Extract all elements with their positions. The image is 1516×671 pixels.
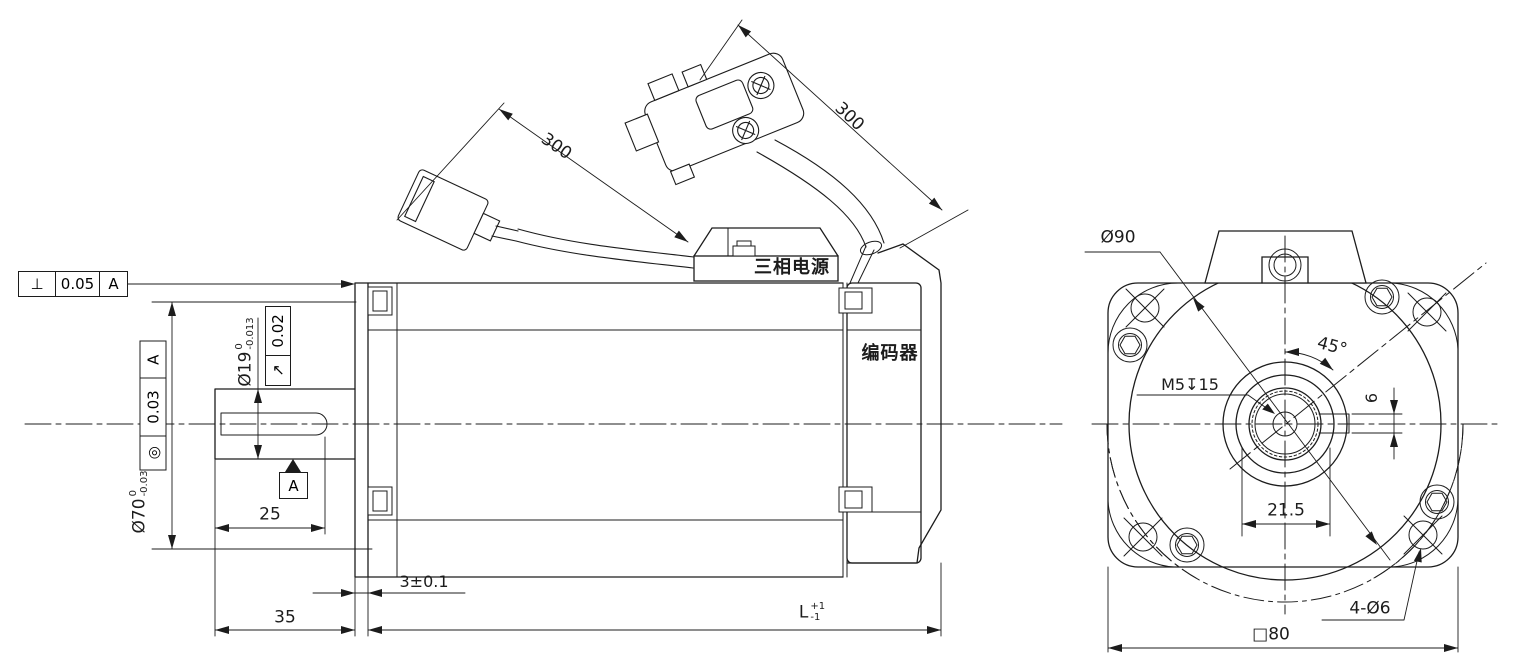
dim-flange-square: □80	[1252, 627, 1290, 644]
perpendicularity-datum: A	[99, 272, 127, 296]
perpendicularity-symbol: ⊥	[19, 272, 55, 296]
dim-shaft-boss-width: 21.5	[1267, 503, 1305, 520]
power-plug-icon	[397, 169, 518, 259]
dim-total-length: L+1-1	[799, 602, 825, 624]
dim-mounting-holes: 4-Ø6	[1349, 601, 1390, 618]
pilot-dia-lower-tol: -0.03	[140, 471, 151, 497]
total-length-value: L	[799, 603, 808, 623]
perpendicularity-tolerance: 0.05	[55, 272, 99, 296]
front-view	[1085, 231, 1498, 652]
power-cable	[516, 229, 694, 268]
datum-triangle	[285, 459, 301, 472]
label-encoder: 编码器	[862, 345, 919, 363]
concentricity-tolerance: 0.03	[141, 379, 166, 436]
concentricity-datum: A	[141, 342, 166, 379]
motor-body	[368, 283, 843, 577]
shaft-dia-lower-tol: -0.013	[246, 317, 257, 349]
dim-flange-thickness: 3±0.1	[399, 574, 448, 590]
dim-shaft-extension: 35	[274, 610, 296, 627]
front-centerlines	[1092, 236, 1498, 614]
runout-symbol: ↗	[266, 356, 290, 385]
runout-tolerance: 0.02	[266, 307, 290, 356]
shaft-diameter-value: Ø19	[236, 352, 256, 387]
dim-pilot-diameter: Ø700-0.03	[129, 471, 151, 534]
datum-flag: A	[279, 472, 308, 499]
side-view	[25, 20, 1062, 636]
engineering-drawing: ⊥ 0.05 A ◎ 0.03 A ↗ 0.02 A Ø700-0.03 Ø19…	[0, 0, 1516, 671]
dim-keyway-width: 6	[1364, 393, 1380, 403]
dim-shaft-diameter: Ø190-0.013	[235, 317, 257, 386]
total-length-lower-tol: -1	[810, 613, 825, 624]
drawing-lines	[0, 0, 1516, 671]
gdt-runout-frame: ↗ 0.02	[265, 306, 291, 386]
gdt-concentricity-frame: ◎ 0.03 A	[140, 341, 167, 471]
encoder-housing	[839, 239, 941, 577]
flange	[355, 283, 368, 577]
dim-shaft-end-tap: M5↧15	[1161, 377, 1219, 393]
label-power-connector: 三相电源	[754, 259, 830, 277]
concentricity-symbol: ◎	[141, 436, 166, 469]
dsub-connector-icon	[615, 33, 812, 193]
dim-body-diameter: Ø90	[1100, 230, 1135, 247]
dim-keyway-length: 25	[259, 507, 281, 524]
encoder-cable	[757, 140, 884, 247]
gdt-perpendicularity-frame: ⊥ 0.05 A	[18, 271, 128, 297]
pilot-diameter-value: Ø70	[130, 498, 150, 533]
